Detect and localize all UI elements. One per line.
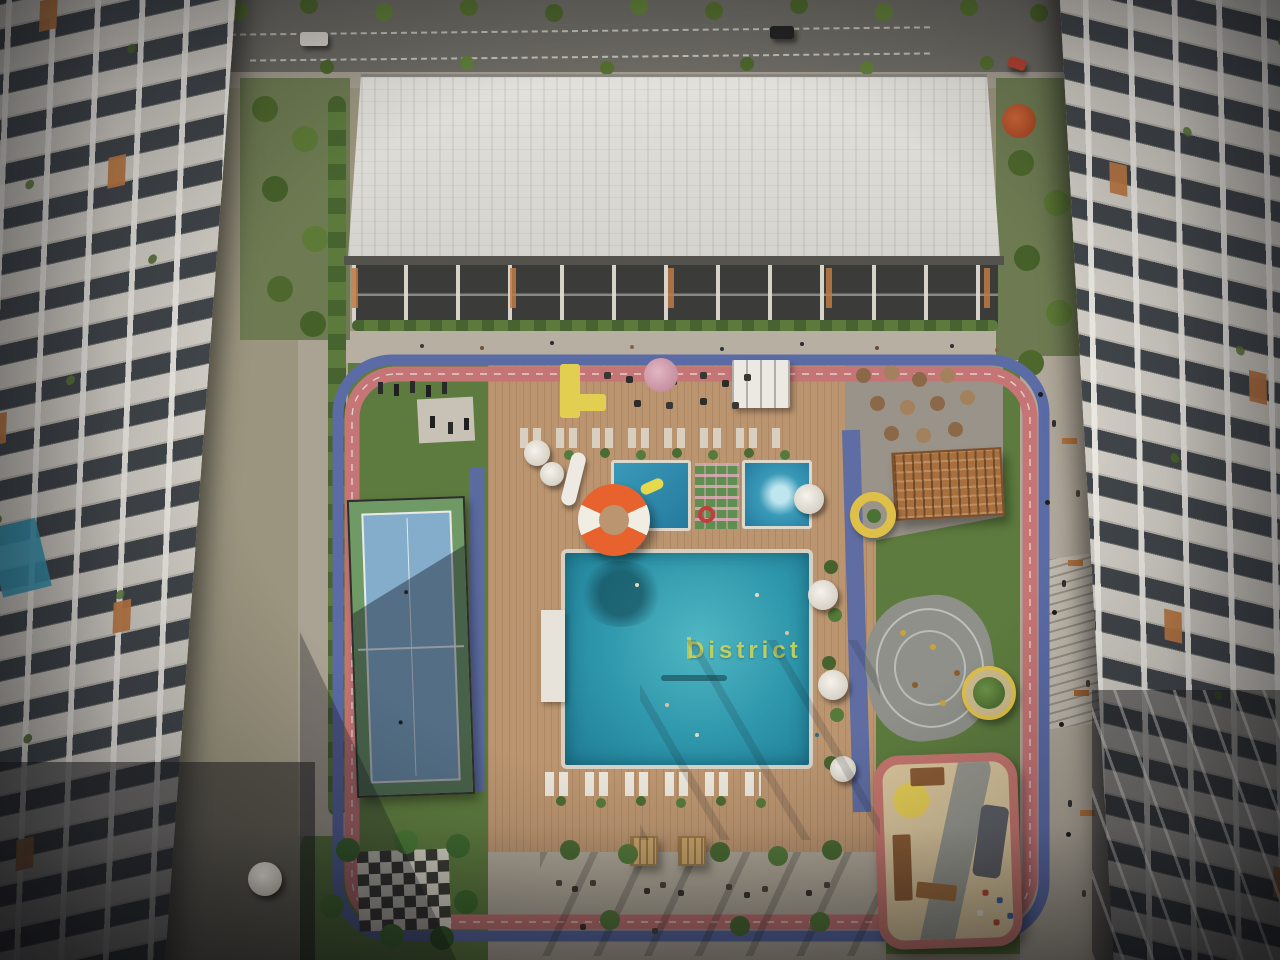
- circular-yellow-seat: [850, 492, 896, 538]
- sand-playground: [873, 752, 1024, 951]
- pool-floor-logo: District: [687, 637, 802, 665]
- climbing-structure: [892, 834, 912, 901]
- facade-orange-panel: [113, 598, 132, 633]
- sun-loungers: [520, 428, 782, 448]
- white-umbrella: [830, 756, 856, 782]
- tree-shadow-on-pool: [579, 561, 663, 627]
- yellow-bench: [578, 394, 606, 411]
- facade-orange-panel: [1249, 369, 1267, 404]
- palm-trees: [336, 838, 360, 862]
- facade-orange-panel: [0, 411, 7, 446]
- tree-planter-bench: [962, 666, 1016, 720]
- playground-yellow-pad: [893, 782, 930, 819]
- facade-orange-panel: [1164, 608, 1182, 643]
- walkway-benches: [1062, 438, 1077, 444]
- paddle-tennis-court: [347, 496, 475, 798]
- red-ring: [698, 506, 715, 523]
- white-umbrella: [540, 462, 564, 486]
- white-umbrella: [794, 484, 824, 514]
- planter-tree: [973, 677, 1005, 709]
- left-tower-terrace: [0, 762, 315, 960]
- lamp-posts: [1038, 392, 1043, 397]
- tree-shadows: [540, 852, 880, 956]
- play-equipment: [982, 890, 988, 896]
- aerial-scene: District: [0, 0, 1280, 960]
- yellow-bench: [560, 364, 580, 418]
- climbing-structure: [916, 881, 957, 901]
- flowering-tree: [644, 358, 678, 392]
- dining-pergola: [678, 836, 706, 866]
- pool-ledge: [541, 610, 565, 702]
- dining-pergola: [630, 836, 658, 866]
- wood-pergola: [891, 447, 1004, 521]
- planters: [824, 560, 838, 574]
- walkway-people: [1052, 420, 1056, 427]
- dining-seating: [556, 880, 562, 886]
- palm-in-seat: [867, 509, 881, 523]
- facade-orange-panel: [39, 0, 58, 32]
- outdoor-gym-equipment: [378, 382, 383, 394]
- lifebuoy-hole: [599, 505, 629, 535]
- white-umbrella: [808, 580, 838, 610]
- climbing-structure: [910, 767, 945, 786]
- dining-trees: [560, 840, 580, 860]
- shrubs: [556, 796, 566, 806]
- sun-loungers: [545, 772, 761, 796]
- main-swimming-pool: District: [561, 549, 813, 769]
- cabana-canopies: [732, 360, 790, 408]
- pool-logo-tagline: [661, 675, 727, 681]
- playground-equipment: [900, 630, 906, 636]
- cafe-umbrellas: [856, 368, 871, 383]
- right-tower-terrace: [1092, 690, 1280, 960]
- pool-float: [639, 477, 665, 497]
- swimmers: [635, 583, 639, 587]
- white-umbrella: [818, 670, 848, 700]
- terrace-umbrella: [248, 862, 282, 896]
- outdoor-gym-mat: [417, 397, 475, 444]
- lifebuoy-sculpture: [578, 484, 650, 556]
- lounge-seating: [604, 372, 611, 379]
- giant-chessboard: [357, 848, 452, 931]
- facade-orange-panel: [1110, 162, 1128, 197]
- facade-orange-panel: [108, 154, 127, 189]
